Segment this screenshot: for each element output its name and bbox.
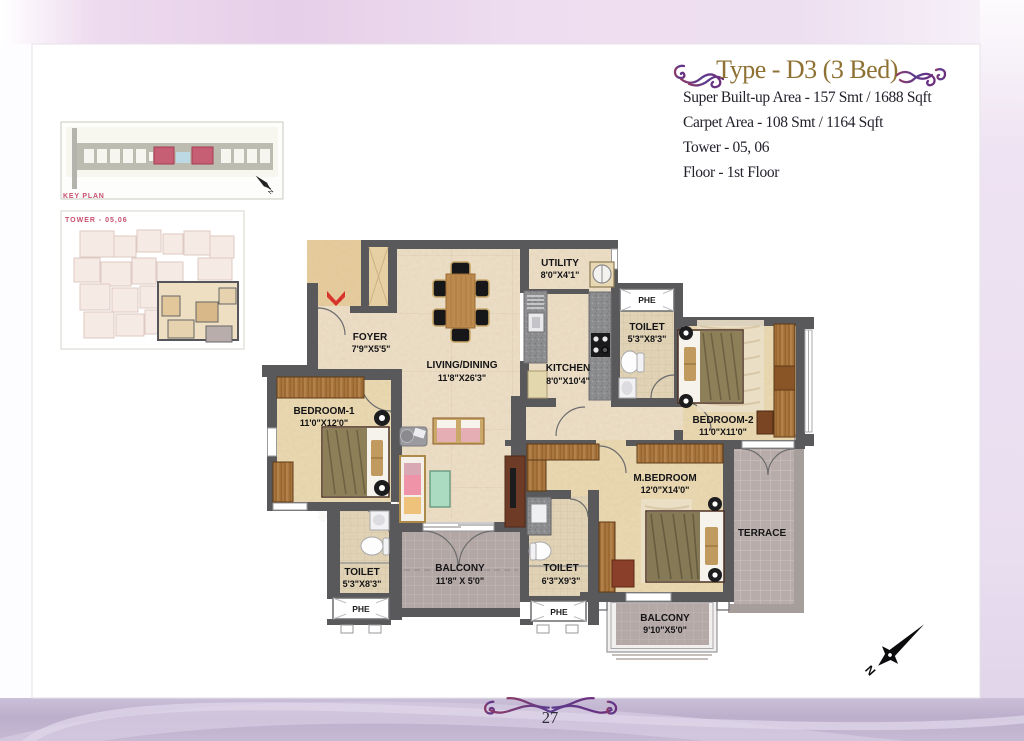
svg-text:8'0"X10'4": 8'0"X10'4" [546, 376, 590, 386]
svg-text:5'3"X8'3": 5'3"X8'3" [343, 579, 382, 589]
svg-text:TOWER - 05,06: TOWER - 05,06 [65, 217, 128, 224]
svg-text:M.BEDROOM: M.BEDROOM [633, 473, 696, 484]
svg-text:PHE: PHE [352, 604, 370, 614]
svg-text:11'8"X26'3": 11'8"X26'3" [438, 373, 486, 383]
svg-text:Tower - 05, 06: Tower - 05, 06 [683, 139, 770, 156]
svg-text:PHE: PHE [550, 607, 568, 617]
svg-text:11'0"X11'0": 11'0"X11'0" [699, 427, 747, 437]
svg-text:Type - D3 (3 Bed): Type - D3 (3 Bed) [716, 55, 898, 84]
svg-text:TOILET: TOILET [543, 563, 578, 574]
svg-text:6'3"X9'3": 6'3"X9'3" [542, 576, 581, 586]
svg-text:TOILET: TOILET [629, 322, 664, 333]
svg-text:12'0"X14'0": 12'0"X14'0" [641, 485, 690, 495]
svg-text:27: 27 [542, 708, 559, 727]
svg-text:LIVING/DINING: LIVING/DINING [426, 360, 497, 371]
svg-text:11'0"X12'0": 11'0"X12'0" [300, 418, 348, 428]
svg-text:BALCONY: BALCONY [640, 613, 690, 624]
svg-text:11'8" X 5'0": 11'8" X 5'0" [436, 576, 484, 586]
svg-text:KEY PLAN: KEY PLAN [63, 193, 105, 200]
svg-text:8'0"X4'1": 8'0"X4'1" [541, 270, 580, 280]
svg-text:KITCHEN: KITCHEN [546, 363, 590, 374]
svg-text:7'9"X5'5": 7'9"X5'5" [352, 344, 391, 354]
svg-text:BEDROOM-2: BEDROOM-2 [692, 415, 754, 426]
svg-text:TERRACE: TERRACE [738, 528, 787, 539]
svg-text:Carpet Area - 108 Smt / 1164 S: Carpet Area - 108 Smt / 1164 Sqft [683, 114, 884, 131]
svg-text:5'3"X8'3": 5'3"X8'3" [628, 334, 667, 344]
svg-text:Super Built-up Area - 157 Smt: Super Built-up Area - 157 Smt / 1688 Sqf… [683, 89, 932, 106]
svg-text:BALCONY: BALCONY [435, 563, 485, 574]
svg-text:UTILITY: UTILITY [541, 258, 579, 269]
svg-text:9'10"X5'0": 9'10"X5'0" [643, 625, 687, 635]
svg-text:TOILET: TOILET [344, 567, 379, 578]
svg-text:BEDROOM-1: BEDROOM-1 [293, 406, 355, 417]
svg-text:PHE: PHE [638, 295, 656, 305]
svg-text:Floor - 1st Floor: Floor - 1st Floor [683, 164, 780, 181]
svg-text:FOYER: FOYER [353, 332, 388, 343]
